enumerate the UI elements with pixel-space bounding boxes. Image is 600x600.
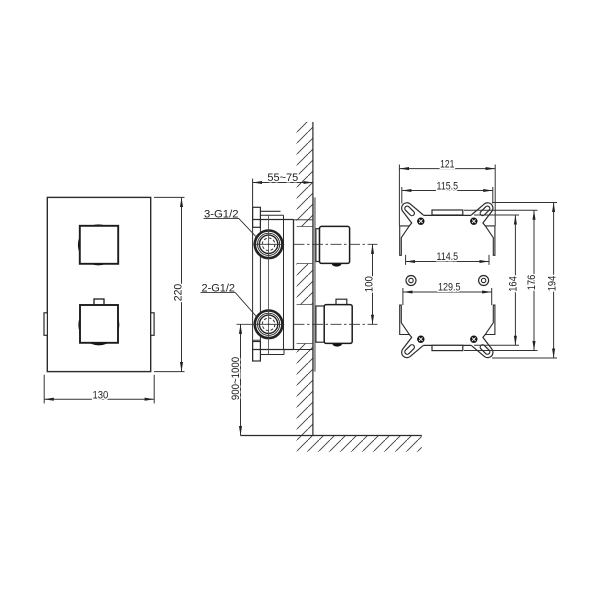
svg-text:114.5: 114.5 bbox=[437, 251, 459, 263]
svg-text:115.5: 115.5 bbox=[437, 180, 459, 192]
svg-text:100: 100 bbox=[363, 276, 375, 292]
svg-text:900~1000: 900~1000 bbox=[230, 357, 242, 400]
svg-text:164: 164 bbox=[508, 276, 520, 292]
svg-text:194: 194 bbox=[547, 276, 559, 292]
svg-text:129.5: 129.5 bbox=[438, 282, 461, 294]
svg-text:220: 220 bbox=[173, 284, 185, 302]
svg-text:130: 130 bbox=[93, 389, 109, 401]
svg-text:121: 121 bbox=[440, 159, 454, 171]
svg-text:55~75: 55~75 bbox=[267, 172, 298, 184]
svg-text:176: 176 bbox=[526, 275, 538, 291]
